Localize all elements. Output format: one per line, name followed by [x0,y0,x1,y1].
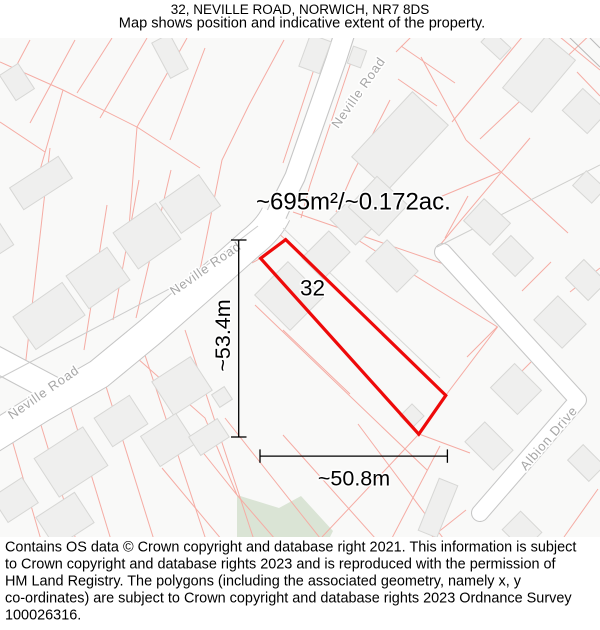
svg-text:100026316.: 100026316. [5,608,81,624]
svg-text:Contains OS data © Crown copyr: Contains OS data © Crown copyright and d… [5,540,576,556]
svg-text:HM Land Registry. The polygons: HM Land Registry. The polygons (includin… [5,574,522,590]
svg-text:Map shows position and indicat: Map shows position and indicative extent… [119,16,485,32]
svg-text:32: 32 [300,276,325,301]
svg-text:~695m²/~0.172ac.: ~695m²/~0.172ac. [256,189,451,216]
svg-text:~53.4m: ~53.4m [211,299,235,371]
svg-text:to Crown copyright and databas: to Crown copyright and database rights 2… [5,557,557,573]
svg-text:~50.8m: ~50.8m [318,467,390,491]
svg-text:co-ordinates) are subject to C: co-ordinates) are subject to Crown copyr… [5,591,572,607]
